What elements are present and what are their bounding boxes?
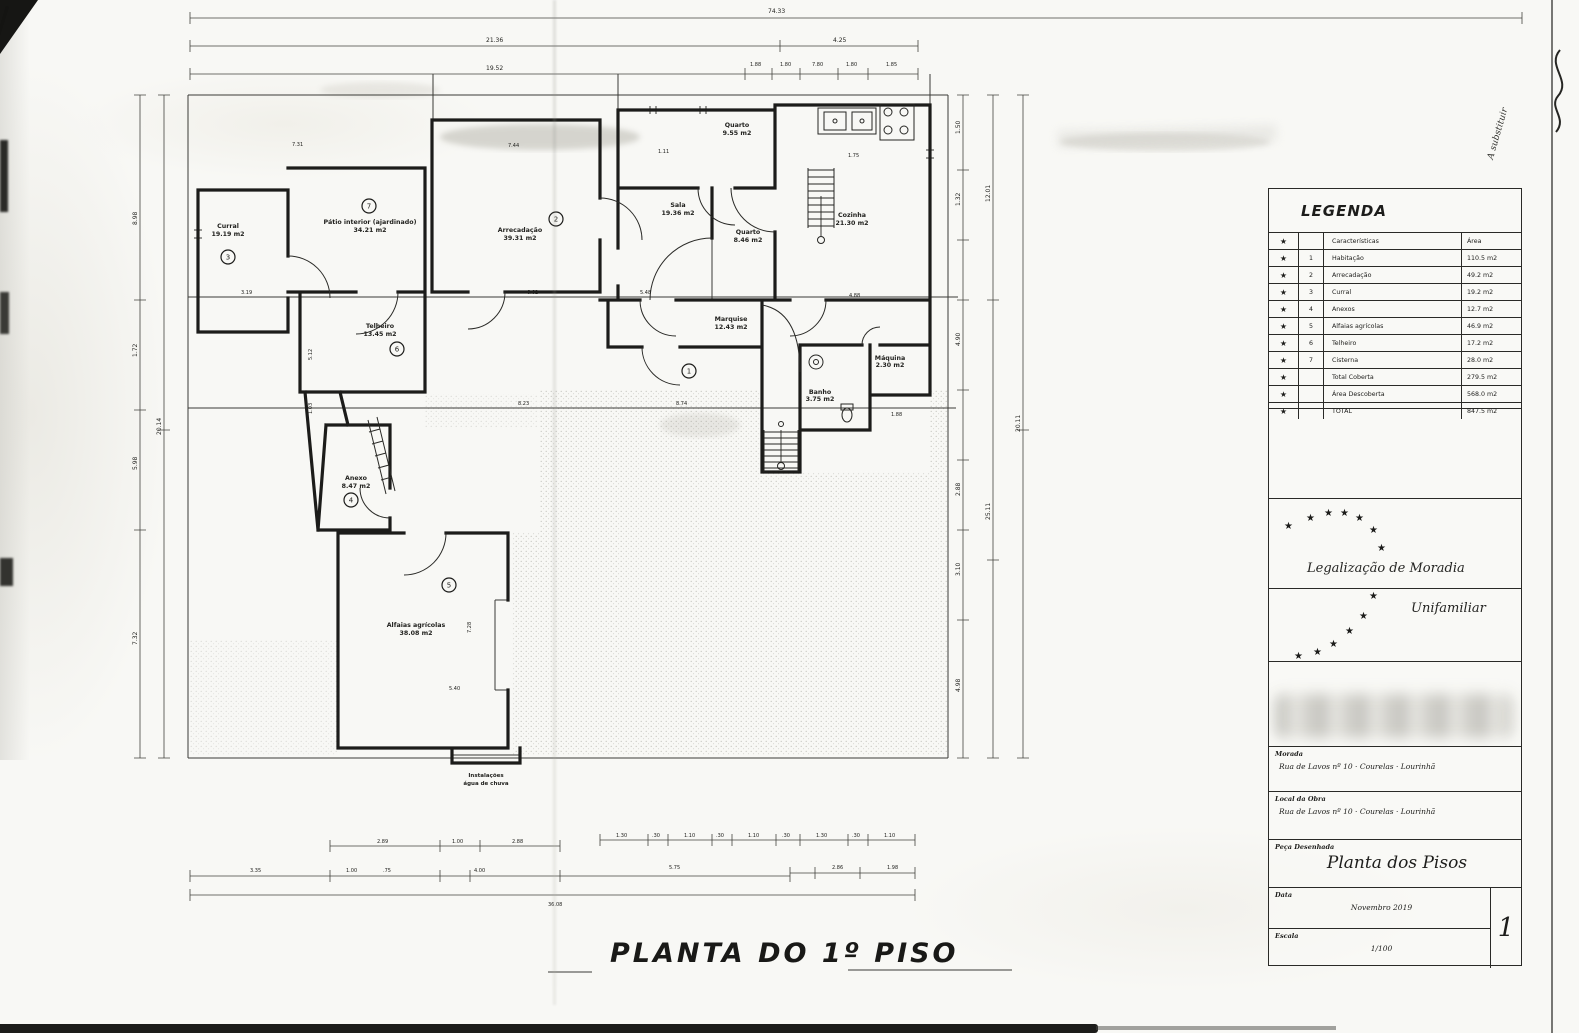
room-label: Quarto (725, 122, 750, 129)
dim-label: 21.36 (486, 37, 503, 44)
dim-label: 7.28 (467, 622, 473, 633)
data-escala-row: Data Novembro 2019 Escala 1/100 1 (1269, 887, 1521, 967)
star-icon: ★ (1269, 301, 1298, 317)
stamp-line-1: Legalização de Moradia (1307, 561, 1465, 576)
circle-number: 7 (367, 203, 371, 211)
morada-box: Morada Rua de Lavos nº 10 · Courelas · L… (1269, 746, 1521, 791)
star-icon: ★ (1313, 647, 1322, 658)
local-obra-value: Rua de Lavos nº 10 · Courelas · Lourinhã (1275, 807, 1515, 816)
room-label: Anexo (345, 475, 368, 482)
room-area: 19.19 m2 (211, 231, 244, 238)
dim-label: 12.01 (985, 185, 992, 202)
room-area: 38.08 m2 (399, 630, 432, 637)
dim-label: 5.12 (308, 349, 314, 360)
dim-label: 3.10 (955, 562, 962, 576)
dim-label: 1.72 (132, 343, 139, 357)
bottom-scan-band (0, 1024, 1098, 1033)
legend-gap (1269, 409, 1521, 498)
star-icon: ★ (1369, 591, 1378, 602)
legend-row: ★ 1 Habitação 110.5 m2 (1269, 249, 1521, 266)
dim-label: .30 (782, 833, 790, 839)
room-label: Pátio interior (ajardinado) (324, 218, 417, 226)
dim-label: 4.00 (474, 868, 485, 874)
room-label: Marquise (715, 316, 748, 323)
star-icon: ★ (1269, 352, 1298, 368)
room-label: Cozinha (838, 212, 866, 219)
redacted-blur (1275, 694, 1513, 738)
room-area: 8.47 m2 (342, 483, 371, 490)
room-label: Arrecadação (498, 227, 543, 234)
dim-label: 3.19 (241, 290, 252, 296)
legend-row: ★ 5 Alfaias agrícolas 46.9 m2 (1269, 317, 1521, 334)
star-icon: ★ (1269, 250, 1298, 266)
dim-label: .30 (652, 833, 660, 839)
star-icon: ★ (1329, 639, 1338, 650)
scanned-floorplan-sheet: 1 2 3 4 5 6 7 Curral 19.19 m2 Pátio inte… (0, 0, 1579, 1033)
legend-header-row: ★ Características Área (1269, 232, 1521, 249)
stamp-lower: ★ ★ ★ ★ ★ ★ Unifamiliar (1269, 588, 1521, 661)
star-icon: ★ (1359, 611, 1368, 622)
dim-label: 1.10 (748, 833, 759, 839)
plan-note: Instalações (468, 773, 504, 779)
dim-label: 19.52 (486, 65, 503, 72)
dim-label: 8.98 (132, 211, 139, 225)
dim-label: 1.03 (308, 403, 314, 414)
local-obra-label: Local da Obra (1275, 795, 1515, 803)
star-icon: ★ (1369, 525, 1378, 536)
peca-desenhada-label: Peça Desenhada (1275, 843, 1515, 851)
legend-row: ★ TOTAL 847.5 m2 (1269, 402, 1521, 419)
dim-label: 2.88 (955, 482, 962, 496)
dim-label: 2.88 (512, 839, 523, 845)
star-icon: ★ (1377, 543, 1386, 554)
legend-row: ★ 7 Cisterna 28.0 m2 (1269, 351, 1521, 368)
dim-label: 1.75 (848, 153, 859, 159)
right-edge-line (1551, 0, 1553, 1033)
dim-label: 6.62 (527, 290, 538, 296)
room-label: Telheiro (366, 323, 395, 330)
room-area: 12.43 m2 (714, 324, 747, 331)
dim-label: 25.11 (985, 503, 992, 520)
dim-label: 1.00 (346, 868, 357, 874)
dim-label: 1.11 (658, 149, 669, 155)
scan-edge-mark (0, 558, 13, 586)
morada-label: Morada (1275, 750, 1515, 758)
peca-desenhada-value: Planta dos Pisos (1275, 853, 1515, 873)
escala-box: Escala 1/100 (1269, 928, 1490, 968)
room-area: 34.21 m2 (353, 227, 386, 234)
dim-label: 4.25 (833, 37, 847, 44)
star-icon: ★ (1340, 508, 1349, 519)
stamp-upper: ★ ★ ★ ★ ★ ★ ★ Legalização de Moradia (1269, 498, 1521, 588)
title-block-column: LEGENDA ★ Características Área ★ 1 Habit… (1268, 188, 1522, 966)
plan-note: água de chuva (463, 780, 508, 787)
dim-label: .30 (716, 833, 724, 839)
room-area: 9.55 m2 (723, 130, 752, 137)
legend-row: ★ 3 Curral 19.2 m2 (1269, 283, 1521, 300)
dim-label: 1.80 (780, 62, 791, 68)
dim-label: 1.32 (955, 192, 962, 206)
dim-label: 7.31 (292, 142, 303, 148)
star-icon: ★ (1306, 513, 1315, 524)
dim-label: 5.48 (640, 290, 651, 296)
dim-label: 2.89 (377, 839, 388, 845)
legend-header-characteristics: Características (1323, 233, 1461, 249)
dim-label: 7.80 (812, 62, 823, 68)
scan-edge-mark (0, 140, 8, 212)
data-box: Data Novembro 2019 (1269, 888, 1490, 928)
data-label: Data (1275, 891, 1484, 899)
scan-edge-mark (0, 292, 9, 334)
dim-label: 5.75 (669, 865, 680, 871)
bottom-scan-band-fade (1096, 1026, 1336, 1030)
star-icon: ★ (1269, 335, 1298, 351)
pen-squiggle (1555, 50, 1562, 132)
star-icon: ★ (1284, 521, 1293, 532)
dim-label: 1.85 (886, 62, 897, 68)
dim-label: 1.88 (891, 412, 902, 418)
dim-label: 4.88 (849, 293, 860, 299)
room-fill (762, 300, 930, 472)
circle-number: 6 (395, 346, 400, 354)
dim-label: 1.10 (884, 833, 895, 839)
dim-label: 7.32 (132, 631, 139, 645)
data-value: Novembro 2019 (1275, 903, 1484, 912)
star-icon: ★ (1269, 403, 1298, 419)
room-area: 39.31 m2 (503, 235, 536, 242)
paper-fold-line (553, 0, 556, 1005)
dim-label: 20.11 (1015, 415, 1022, 432)
legend-row: ★ 2 Arrecadação 49.2 m2 (1269, 266, 1521, 283)
star-icon: ★ (1269, 267, 1298, 283)
room-label: Máquina (875, 354, 905, 362)
room-area: 19.36 m2 (661, 210, 694, 217)
dim-label: 1.10 (684, 833, 695, 839)
dim-label: 1.98 (887, 865, 898, 871)
circle-number: 3 (226, 254, 230, 262)
star-icon: ★ (1269, 369, 1298, 385)
legend-table: LEGENDA ★ Características Área ★ 1 Habit… (1269, 189, 1521, 409)
legend-row: ★ 4 Anexos 12.7 m2 (1269, 300, 1521, 317)
legend-header-area: Área (1461, 233, 1521, 249)
room-label: Curral (217, 223, 239, 230)
dim-label: 8.74 (676, 401, 687, 407)
escala-label: Escala (1275, 932, 1484, 940)
kitchen-fixtures (818, 104, 914, 140)
legend-row: ★ 6 Telheiro 17.2 m2 (1269, 334, 1521, 351)
dim-label: .75 (383, 868, 391, 874)
left-edge-shadow (0, 0, 30, 760)
star-icon: ★ (1269, 386, 1298, 402)
star-icon: ★ (1324, 508, 1333, 519)
dim-label: 5.40 (449, 686, 460, 692)
room-label: Banho (809, 389, 832, 396)
room-area: 21.30 m2 (835, 220, 868, 227)
dim-label: 20.14 (156, 418, 163, 435)
circle-number: 4 (349, 497, 354, 505)
dim-label: 1.80 (846, 62, 857, 68)
dim-label: 74.33 (768, 8, 785, 15)
stamp-line-2: Unifamiliar (1411, 601, 1486, 616)
room-area: 13.45 m2 (363, 331, 396, 338)
star-icon: ★ (1345, 626, 1354, 637)
dim-label: 2.86 (832, 865, 843, 871)
room-label: Quarto (736, 229, 761, 236)
legend-title: LEGENDA (1269, 189, 1521, 232)
morada-value: Rua de Lavos nº 10 · Courelas · Lourinhã (1275, 762, 1515, 771)
room-label: Sala (670, 202, 685, 209)
dim-label: 4.98 (955, 678, 962, 692)
room-label: Alfaias agrícolas (387, 621, 446, 629)
redacted-box (1269, 661, 1521, 746)
local-obra-box: Local da Obra Rua de Lavos nº 10 · Coure… (1269, 791, 1521, 839)
sheet-title: PLANTA DO 1º PISO (610, 938, 959, 969)
room-area: 8.46 m2 (734, 237, 763, 244)
sheet-number: 1 (1491, 888, 1521, 968)
legend-row: ★ Área Descoberta 568.0 m2 (1269, 385, 1521, 402)
dim-label: .30 (852, 833, 860, 839)
star-icon: ★ (1355, 513, 1364, 524)
legend-row: ★ Total Coberta 279.5 m2 (1269, 368, 1521, 385)
dim-label: 1.30 (616, 833, 627, 839)
peca-desenhada-box: Peça Desenhada Planta dos Pisos (1269, 839, 1521, 887)
dim-label: 1.50 (955, 120, 962, 134)
circle-number: 5 (447, 582, 451, 590)
dim-label: 1.00 (452, 839, 463, 845)
dim-label: 1.30 (816, 833, 827, 839)
escala-value: 1/100 (1275, 944, 1484, 953)
room-area: 2.30 m2 (876, 362, 905, 369)
dim-label: 4.90 (955, 332, 962, 346)
dim-label: 8.23 (518, 401, 529, 407)
star-icon: ★ (1269, 233, 1298, 249)
circle-number: 1 (687, 368, 691, 376)
dim-label: 5.98 (132, 456, 139, 470)
star-icon: ★ (1269, 318, 1298, 334)
dim-label: 3.35 (250, 868, 261, 874)
dim-label: 7.44 (508, 143, 519, 149)
star-icon: ★ (1269, 284, 1298, 300)
room-area: 3.75 m2 (806, 396, 835, 403)
dim-label: 1.88 (750, 62, 761, 68)
